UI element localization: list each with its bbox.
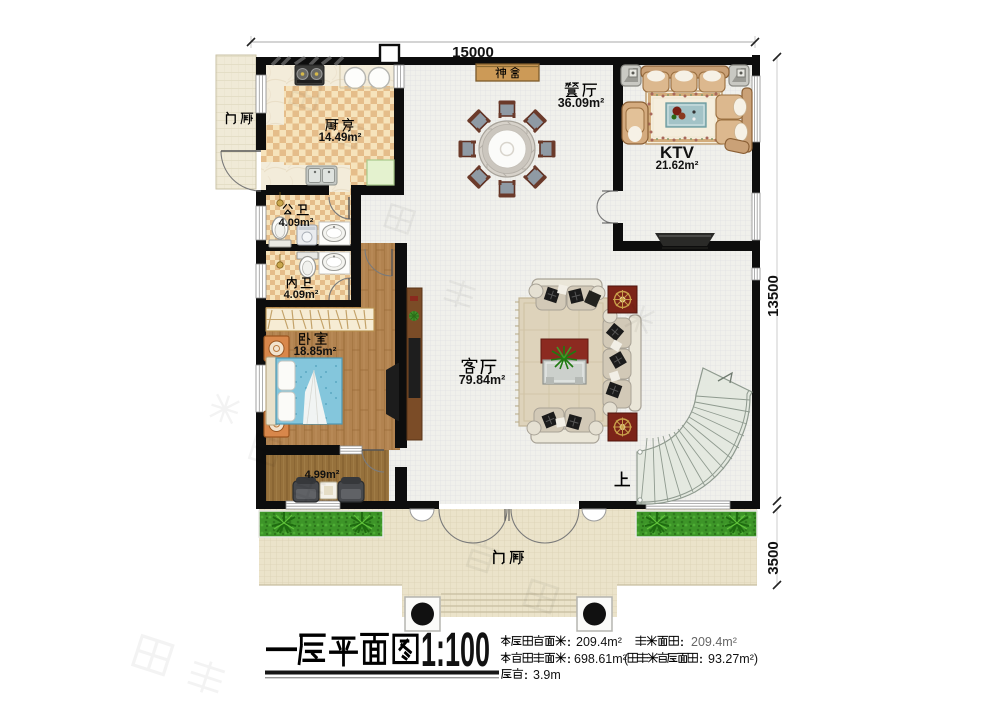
svg-text::: : [524, 668, 528, 682]
svg-text::: : [567, 652, 571, 666]
svg-text:93.27m²): 93.27m²) [708, 652, 758, 666]
svg-text:4.09m²: 4.09m² [284, 289, 319, 301]
svg-text::: : [699, 652, 703, 666]
svg-text:21.62m²: 21.62m² [656, 160, 699, 172]
svg-text:18.85m²: 18.85m² [294, 346, 337, 358]
svg-text:15000: 15000 [452, 44, 494, 61]
svg-text:13500: 13500 [765, 275, 782, 317]
svg-text:209.4m²: 209.4m² [576, 635, 622, 649]
svg-text:1:100: 1:100 [421, 624, 490, 677]
svg-text:36.09m²: 36.09m² [558, 96, 605, 110]
svg-text:14.49m²: 14.49m² [319, 132, 362, 144]
svg-text::: : [567, 635, 571, 649]
svg-text:3.9m: 3.9m [533, 668, 561, 682]
svg-text:4.09m²: 4.09m² [279, 217, 314, 229]
svg-text:3500: 3500 [765, 541, 782, 574]
svg-text:698.61m²: 698.61m² [574, 652, 627, 666]
svg-text:4.99m²: 4.99m² [305, 469, 340, 481]
svg-text::: : [680, 635, 684, 649]
svg-text:79.84m²: 79.84m² [459, 373, 506, 387]
svg-text:209.4m²: 209.4m² [691, 635, 737, 649]
